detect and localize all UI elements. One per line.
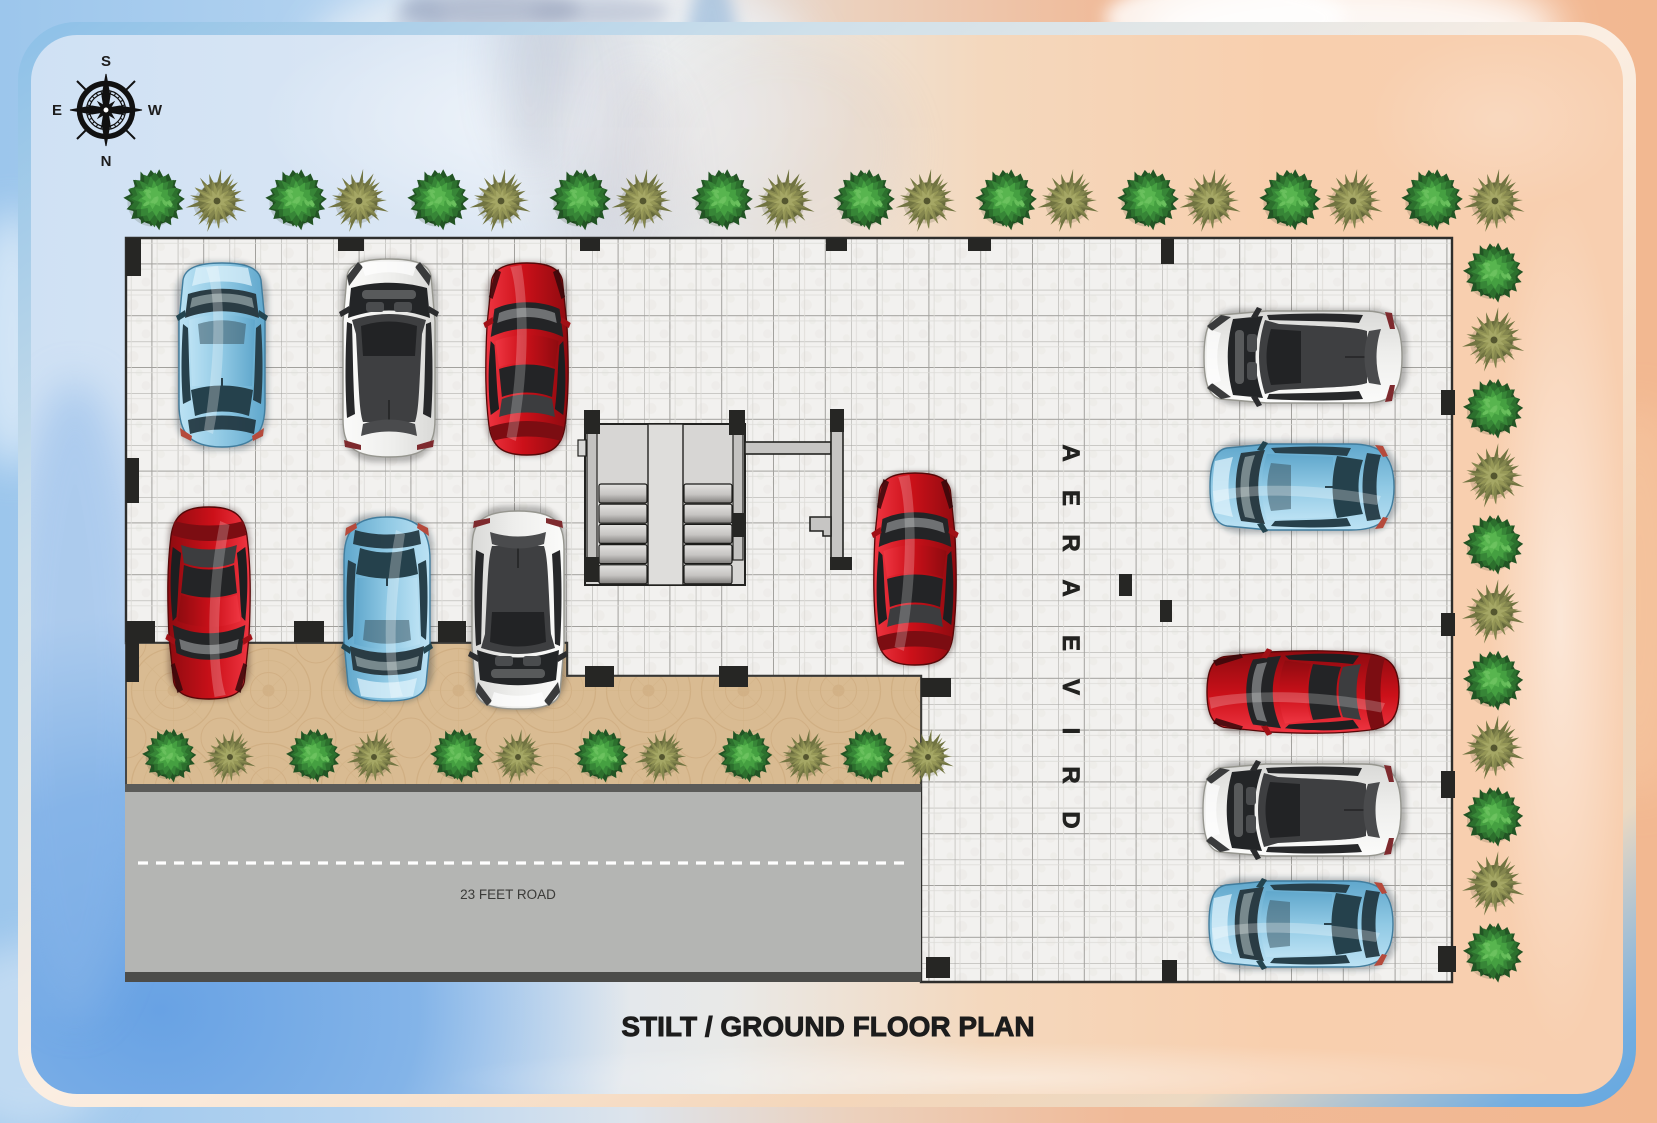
svg-text:I: I <box>1057 728 1084 735</box>
svg-text:N: N <box>101 153 112 170</box>
svg-text:W: W <box>148 102 163 119</box>
svg-text:A: A <box>1057 444 1084 461</box>
svg-text:V: V <box>1057 679 1084 695</box>
svg-text:E: E <box>1057 490 1084 506</box>
svg-text:E: E <box>52 102 62 119</box>
svg-text:STILT / GROUND FLOOR PLAN: STILT / GROUND FLOOR PLAN <box>621 1011 1034 1042</box>
svg-text:23 FEET ROAD: 23 FEET ROAD <box>460 887 556 902</box>
svg-text:R: R <box>1057 534 1084 551</box>
svg-text:A: A <box>1057 579 1084 596</box>
svg-text:D: D <box>1057 811 1084 828</box>
svg-text:S: S <box>101 53 111 70</box>
svg-text:E: E <box>1057 635 1084 651</box>
svg-text:R: R <box>1057 766 1084 783</box>
